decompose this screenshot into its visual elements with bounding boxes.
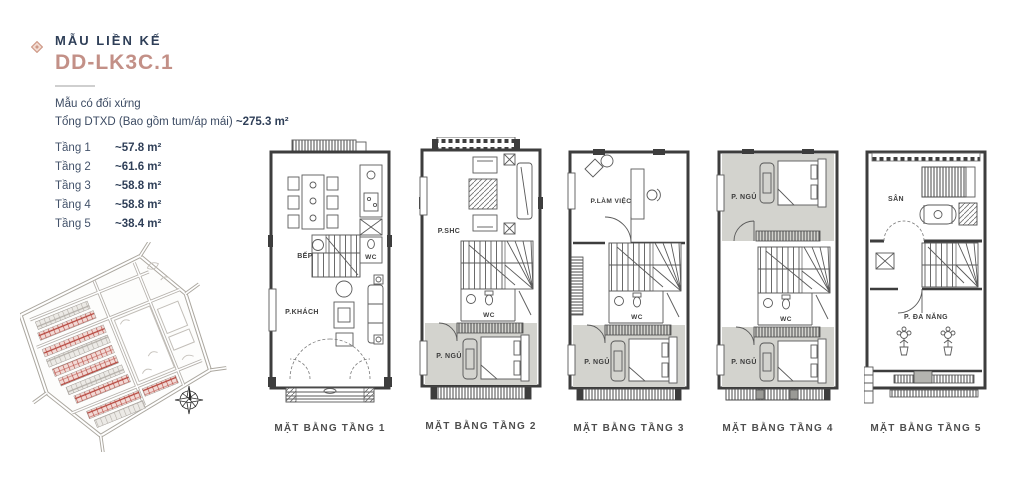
table-row: Tầng 4 ~58.8 m²	[55, 195, 161, 214]
room-label-multi: P. ĐA NĂNG	[904, 312, 948, 321]
floor-plan-tang-3: P.LÀM VIỆC WC	[567, 139, 691, 407]
room-label-wc: WC	[631, 314, 643, 321]
floor-plan-tang-2: P.SHC WC	[419, 137, 543, 405]
porch-steps	[286, 388, 374, 402]
floor-area-table: Tầng 1 ~57.8 m² Tầng 2 ~61.6 m² Tầng 3 ~…	[55, 138, 161, 233]
diamond-icon	[31, 41, 43, 53]
floor-area-value: ~61.6 m²	[115, 161, 161, 173]
table-row: Tầng 3 ~58.8 m²	[55, 176, 161, 195]
site-plan-map	[20, 242, 235, 452]
floor-label: Tầng 4	[55, 199, 115, 211]
floor-area-value: ~38.4 m²	[115, 218, 161, 230]
model-category-title: MẪU LIỀN KẾ	[55, 33, 289, 48]
staircase	[312, 235, 360, 277]
divider	[55, 85, 95, 87]
floor-plan-tang-5: SÂN P. ĐA NĂNG	[864, 139, 988, 407]
staircase	[758, 247, 830, 293]
terrace-railing	[872, 153, 980, 161]
staircase	[461, 241, 533, 289]
bay-window	[437, 137, 515, 149]
bay-window	[292, 140, 356, 152]
brochure-page: MẪU LIỀN KẾ DD-LK3C.1 Mẫu có đối xứng Tổ…	[0, 0, 1024, 481]
room-label-terrace: SÂN	[888, 194, 904, 203]
floor-label: Tầng 1	[55, 142, 115, 154]
room-label-bedroom-bottom: P. NGỦ	[731, 357, 757, 366]
floor-area-value: ~58.8 m²	[115, 180, 161, 192]
balcony	[577, 389, 681, 400]
staircase	[609, 243, 681, 291]
floor-area-value: ~58.8 m²	[115, 199, 161, 211]
floor-plan-tang-1: BẾP + ĂN WC	[268, 139, 392, 407]
dining-table	[288, 175, 338, 229]
kitchen-counter	[360, 165, 382, 217]
room-label-wc: WC	[365, 254, 377, 261]
floor-plan-caption: MẶT BẰNG TẦNG 2	[405, 421, 557, 432]
staircase	[922, 243, 978, 287]
room-label-office: P.LÀM VIỆC	[591, 196, 632, 205]
floor-label: Tầng 2	[55, 161, 115, 173]
total-area-value: ~275.3 m²	[236, 116, 289, 128]
wc-room: WC	[360, 237, 382, 263]
room-label-living: P.KHÁCH	[285, 307, 319, 316]
table-row: Tầng 2 ~61.6 m²	[55, 157, 161, 176]
floor-label: Tầng 5	[55, 218, 115, 230]
total-area-label: Tổng DTXD (Bao gồm tum/áp mái)	[55, 116, 233, 128]
floor-plan-caption: MẶT BẰNG TẦNG 3	[553, 423, 705, 434]
terrace-equipment	[920, 167, 977, 225]
floor-area-value: ~57.8 m²	[115, 142, 161, 154]
room-label-wc: WC	[780, 316, 792, 323]
model-code: DD-LK3C.1	[55, 51, 289, 75]
balcony	[431, 387, 531, 399]
room-label-wc: WC	[483, 312, 495, 319]
room-label-family: P.SHC	[438, 228, 461, 235]
balcony	[726, 389, 830, 400]
bedroom	[568, 325, 685, 387]
bedroom-bottom	[717, 327, 834, 387]
side-wing	[864, 367, 873, 403]
room-label-bedroom: P. NGỦ	[436, 351, 462, 360]
floor-plan-caption: MẶT BẰNG TẦNG 5	[850, 423, 1002, 434]
louver-shaft	[571, 257, 583, 315]
symmetry-note: Mẫu có đối xứng	[55, 96, 289, 112]
floor-label: Tầng 3	[55, 180, 115, 192]
total-area-line: Tổng DTXD (Bao gồm tum/áp mái) ~275.3 m²	[55, 114, 289, 130]
table-row: Tầng 5 ~38.4 m²	[55, 214, 161, 233]
room-label-bedroom-top: P. NGỦ	[731, 192, 757, 201]
table-row: Tầng 1 ~57.8 m²	[55, 138, 161, 157]
floor-plan-caption: MẶT BẰNG TẦNG 4	[702, 423, 854, 434]
floor-plan-caption: MẶT BẰNG TẦNG 1	[254, 423, 406, 434]
room-label-bedroom: P. NGỦ	[584, 357, 610, 366]
floor-plan-tang-4: P. NGỦ WC	[716, 139, 840, 407]
